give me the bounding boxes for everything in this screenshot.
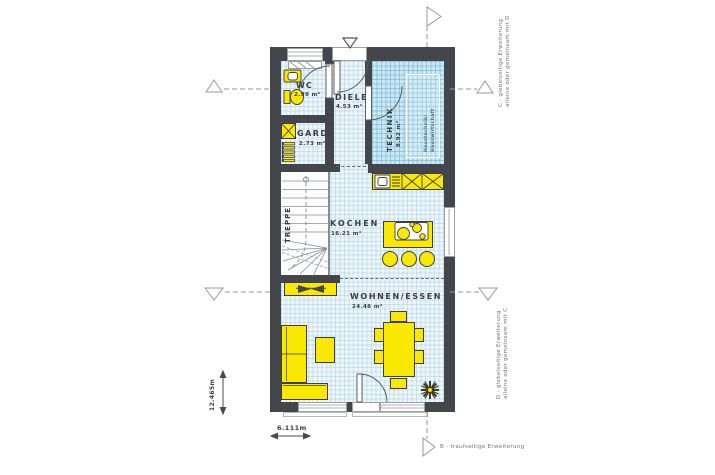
wall-gard-stairs	[270, 164, 340, 172]
dining-chair	[374, 328, 384, 342]
room-area-diele: 4.53 m²	[336, 104, 362, 110]
wall-diele-technik-lower	[365, 120, 372, 164]
window-sill-right	[352, 412, 428, 417]
bar-stool	[401, 251, 417, 267]
dining-chair	[374, 350, 384, 364]
coffee-table	[315, 337, 335, 363]
entrance-door-frame	[332, 47, 367, 61]
expansion-note-d-line1: D - giebelseitige Erweiterung	[496, 308, 503, 399]
wardrobe-box	[281, 123, 296, 139]
dining-chair	[390, 378, 407, 389]
expansion-note-b: B - traufseitige Erweiterung	[440, 444, 524, 451]
room-area-wc: 2.99 m²	[294, 92, 320, 98]
room-area-wohnen-essen: 24.48 m²	[352, 304, 383, 310]
window-sill-left	[283, 412, 347, 417]
wall-diele-technik-upper	[365, 61, 372, 86]
dining-chair	[414, 350, 424, 364]
room-area-technik: 8.92 m²	[396, 121, 402, 147]
technik-sublabel-line1: Haustechnik/	[424, 109, 431, 152]
wc-radiator	[288, 61, 322, 69]
wall-wc-gard	[281, 115, 334, 123]
expansion-note-d-line2: alleine oder gemeinsam mit C	[503, 308, 510, 399]
expansion-note-c: C - giebelseitige Erweiterung alleine od…	[498, 15, 512, 107]
sofa-short	[281, 383, 328, 400]
dimension-width: 6.111m	[277, 424, 307, 432]
sofa-long	[281, 325, 307, 383]
exterior-wall-left	[270, 47, 281, 412]
room-label-wohnen-essen: WOHNEN/ESSEN	[350, 292, 442, 301]
room-label-gard: GARD.	[297, 129, 333, 138]
bar-stool	[419, 251, 435, 267]
sideboard-tv	[284, 282, 337, 296]
expansion-note-d: D - giebelseitige Erweiterung alleine od…	[496, 308, 510, 399]
dining-table	[383, 322, 415, 377]
wall-technik-kitchen	[368, 164, 444, 173]
wall-wc-diele-upper	[325, 61, 334, 64]
expansion-note-c-line2: alleine oder gemeinsam mit D	[505, 15, 512, 107]
terrace-door-frame	[352, 402, 380, 412]
room-area-kochen: 16.21 m²	[331, 231, 362, 237]
living-window-left	[298, 402, 347, 412]
room-area-gard: 2.73 m²	[299, 141, 325, 147]
room-label-wc: WC	[296, 81, 313, 90]
room-label-diele: DIELE	[335, 93, 368, 102]
dining-chair	[390, 311, 407, 322]
dimension-depth: 12.465m	[209, 379, 216, 411]
kitchen-counter	[372, 173, 444, 190]
technik-sublabel-line2: Hauswirtschaft	[431, 109, 438, 152]
room-label-kochen: KOCHEN	[330, 219, 379, 228]
bar-stool	[382, 251, 398, 267]
dining-chair	[414, 328, 424, 342]
room-label-technik: TECHNIK	[386, 107, 394, 152]
technik-sublabel: Haustechnik/ Hauswirtschaft	[424, 109, 437, 152]
open-boundary-diele-kochen	[336, 166, 366, 167]
floor-plan: WC 2.99 m² DIELE 4.53 m² GARD. 2.73 m² T…	[0, 0, 715, 475]
open-boundary-kochen-wohnen	[340, 278, 444, 279]
room-label-treppe: TREPPE	[284, 207, 292, 243]
kitchen-side-door	[444, 207, 455, 257]
living-window-right	[380, 402, 425, 412]
expansion-note-c-line1: C - giebelseitige Erweiterung	[498, 15, 505, 107]
kitchen-island	[383, 221, 433, 248]
wc-window	[287, 48, 323, 61]
